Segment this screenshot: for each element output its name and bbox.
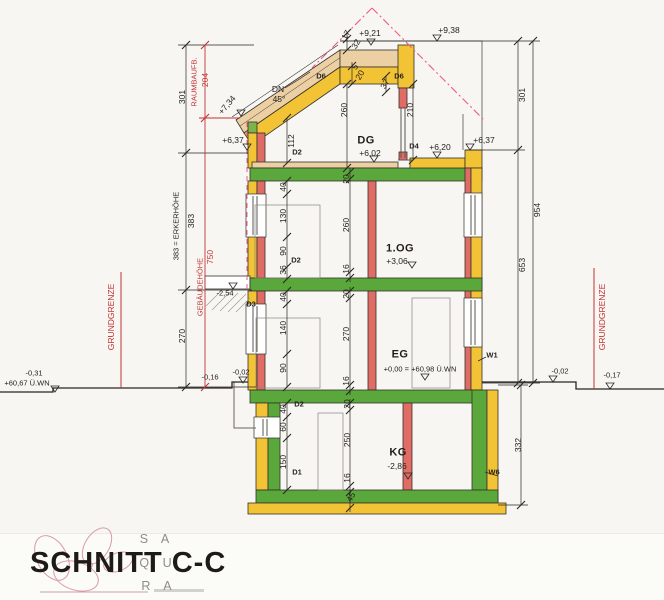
dim-301-right: 301	[518, 88, 527, 102]
dim-16-kg: 16	[343, 473, 352, 482]
level-031: -0,31	[25, 369, 42, 377]
roof-pitch-45: 45°	[273, 95, 286, 104]
section-drawing	[0, 0, 664, 600]
dim-20-og: 20	[342, 174, 351, 183]
roof-pitch-dn: DN	[272, 85, 284, 94]
level-002-right: -0,02	[551, 367, 568, 375]
logo-text-row3: R A	[141, 579, 176, 593]
dim-204: 204	[201, 73, 210, 87]
door-d1: D1	[292, 468, 302, 476]
level-286: -2,86	[387, 462, 406, 471]
red-dimension-lines	[199, 41, 240, 391]
level-637-left: +6,37	[222, 136, 244, 145]
dim-260-dg: 260	[340, 103, 349, 117]
dim-250: 250	[343, 433, 352, 447]
dim-750: 750	[206, 250, 215, 264]
dim-653: 653	[518, 258, 527, 272]
window-w1: W1	[486, 351, 497, 359]
room-dg: DG	[357, 136, 374, 147]
dim-383: 383	[187, 214, 196, 228]
room-kg: KG	[389, 448, 406, 459]
dim-90-og: 90	[279, 246, 288, 255]
door-d3: D3	[246, 300, 256, 308]
window-w6: W6	[488, 468, 499, 476]
dim-301-left: 301	[178, 90, 187, 104]
level-637-right: +6,37	[473, 136, 495, 145]
logo-text-row1: S A	[140, 532, 174, 546]
door-d2-kg: D2	[294, 400, 304, 408]
level-306: +3,06	[386, 257, 408, 266]
level-markers	[51, 35, 614, 479]
dim-40-eg: 40	[279, 292, 288, 301]
dim-130: 130	[279, 209, 288, 223]
dim-270-left: 270	[178, 329, 187, 343]
dim-20-kg: 20	[343, 399, 352, 408]
door-d6-left: D6	[316, 72, 326, 80]
dim-332: 332	[514, 438, 523, 452]
gebaeudehoehe-label: GEBÄUDEHÖHE	[196, 258, 204, 316]
dim-383-erkerhoehe: 383 = ERKERHÖHE	[172, 192, 180, 261]
door-d6-right: D6	[394, 72, 404, 80]
dim-260-og: 260	[342, 218, 351, 232]
dim-60: 60	[279, 422, 288, 431]
dim-270-eg: 270	[342, 327, 351, 341]
dim-210: 210	[406, 103, 415, 117]
dim-16-og: 16	[342, 264, 351, 273]
room-og: 1.OG	[386, 244, 414, 255]
level-602: +6,02	[359, 149, 381, 158]
level-002-left: -0,02	[232, 368, 249, 376]
level-254: -2,54	[216, 289, 233, 297]
level-000: +0,00 = +60,98 Ü.WN	[384, 365, 457, 373]
door-d2-dg: D2	[292, 148, 302, 156]
grundgrenze-left: GRUNDGRENZE	[107, 284, 116, 351]
raumbaufb-label: RAUMBAUFB.	[190, 57, 198, 106]
grundgrenze-right: GRUNDGRENZE	[598, 284, 607, 351]
drawing-title: SCHNITT C-C	[30, 549, 226, 578]
level-017: -0,17	[603, 371, 620, 379]
dim-90-eg: 90	[279, 363, 288, 372]
dim-954: 954	[533, 203, 542, 217]
architectural-section-sheet: +9,21 +9,38 17 32 5 20 D6 D6 37 DN 45° 2…	[0, 0, 664, 600]
level-938: +9,38	[438, 26, 460, 35]
door-d4: D4	[409, 142, 419, 150]
dim-40-kg: 40	[279, 404, 288, 413]
dim-16-eg: 16	[342, 376, 351, 385]
room-eg: EG	[392, 350, 409, 361]
dim-20-eg: 20	[342, 289, 351, 298]
dim-40-og: 40	[279, 182, 288, 191]
dim-150: 150	[279, 455, 288, 469]
level-921: +9,21	[359, 29, 381, 38]
level-620: +6,20	[429, 143, 451, 152]
dim-112: 112	[287, 134, 296, 148]
dim-36: 36	[279, 265, 288, 274]
door-d2-og: D2	[291, 256, 301, 264]
level-6067: +60,67 Ü.WN	[4, 379, 49, 387]
dim-140: 140	[279, 321, 288, 335]
level-016: -0,16	[201, 373, 218, 381]
